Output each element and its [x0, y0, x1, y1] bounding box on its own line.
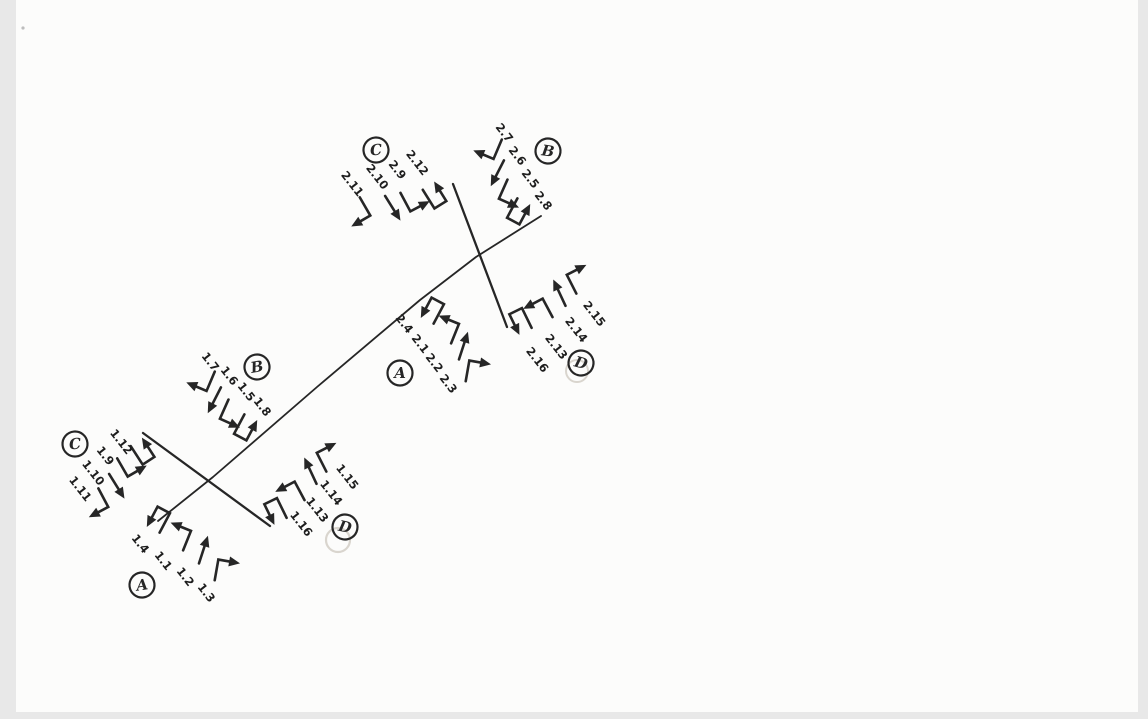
through-arrow-icon: [194, 534, 212, 565]
movement-label: 1.4: [129, 531, 153, 556]
approach-label-circle-a: A: [128, 571, 156, 599]
through-arrow-icon: [105, 471, 129, 501]
movement-label: 1.9: [94, 443, 118, 468]
left-turn-arrow-icon: [431, 311, 461, 343]
movement-label: 2.3: [437, 371, 461, 396]
movement-label: 2.15: [580, 298, 609, 329]
movement-label: 2.4: [393, 311, 417, 336]
approach-label-circle-c: C: [362, 136, 389, 163]
left-turn-arrow-icon: [163, 518, 193, 550]
through-arrow-icon: [454, 330, 472, 361]
movement-label: 2.7: [493, 120, 517, 145]
approach-label-circle-b: B: [534, 137, 562, 165]
through-arrow-icon: [381, 193, 405, 223]
movement-label: 2.5: [519, 166, 543, 191]
approach-letter: D: [571, 352, 589, 373]
uturn-arrow-icon: [505, 308, 532, 337]
diagram-svg: 1.41.11.21.3A1.71.61.51.8B1.111.101.91.1…: [0, 0, 1148, 719]
paper-speck: [21, 26, 24, 29]
approach-letter: C: [68, 435, 82, 454]
movement-label: 1.6: [218, 363, 242, 388]
approach-letter: B: [248, 357, 265, 377]
approach-letter: C: [369, 141, 383, 160]
movement-label: 2.1: [409, 331, 433, 356]
approach-label-circle-d: D: [330, 512, 360, 542]
movement-label: 2.16: [523, 344, 552, 375]
approach-b-group: 2.72.62.52.8: [471, 120, 555, 226]
through-arrow-icon: [549, 277, 570, 308]
movement-label: 2.2: [423, 350, 447, 375]
movement-label: 2.11: [338, 168, 367, 199]
screenshot-root: { "document": { "kind": "hand-drawn traf…: [0, 0, 1148, 719]
approach-label-circle-b: B: [243, 353, 272, 382]
movement-label: 2.9: [386, 157, 410, 182]
movement-label: 2.13: [542, 331, 571, 362]
movement-label: 2.8: [532, 188, 556, 213]
approach-letter: A: [133, 575, 149, 595]
cross-road-line-1: [143, 433, 270, 526]
left-turn-arrow-icon: [521, 294, 553, 327]
right-turn-arrow-icon: [565, 260, 596, 293]
right-turn-arrow-icon: [466, 356, 492, 385]
right-turn-arrow-icon: [471, 131, 501, 164]
movement-label: 1.1: [152, 548, 176, 573]
right-turn-arrow-icon: [215, 555, 241, 584]
uturn-arrow-icon: [130, 435, 158, 465]
approach-letter: B: [539, 141, 555, 161]
uturn-arrow-icon: [142, 504, 170, 533]
through-arrow-icon: [300, 455, 321, 486]
approach-label-circle-c: C: [61, 430, 88, 457]
movement-label: 2.6: [506, 143, 530, 168]
movement-label: 1.2: [174, 564, 198, 589]
movement-label: 1.3: [195, 580, 219, 605]
right-turn-arrow-icon: [341, 197, 373, 231]
movement-label: 2.14: [562, 314, 591, 345]
approach-c-group: 2.112.102.92.12: [338, 147, 450, 231]
approach-label-circle-a: A: [388, 361, 413, 386]
approach-letter: D: [336, 517, 353, 538]
cross-road-line-2: [453, 184, 507, 327]
left-turn-arrow-icon: [273, 477, 305, 510]
approach-letter: A: [392, 364, 406, 382]
